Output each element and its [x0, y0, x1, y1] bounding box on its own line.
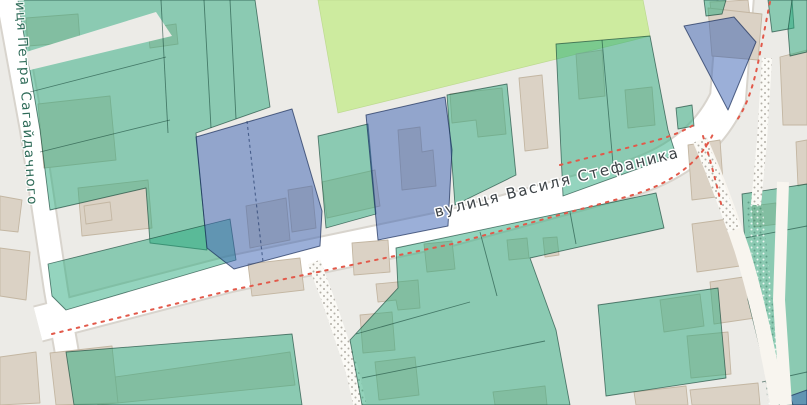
map-canvas[interactable]: вулиця Василя Стефаника вулиця Петра Саг…	[0, 0, 807, 405]
map-svg: вулиця Василя Стефаника вулиця Петра Саг…	[0, 0, 807, 405]
building	[796, 140, 807, 186]
road-side-east	[779, 182, 786, 405]
building	[84, 202, 112, 224]
parcel-teal[interactable]	[788, 0, 807, 56]
building	[248, 258, 304, 296]
parcel-teal[interactable]	[598, 288, 726, 396]
building	[0, 196, 22, 232]
building	[780, 50, 807, 125]
building	[0, 248, 30, 300]
parcel-teal[interactable]	[318, 124, 376, 228]
building	[0, 352, 40, 405]
